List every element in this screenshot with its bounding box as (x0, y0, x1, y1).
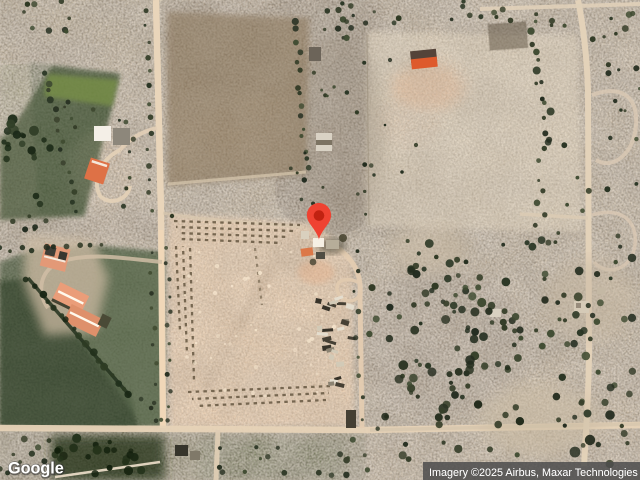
svg-text:Google: Google (8, 460, 64, 478)
svg-text:Imagery ©2025 Airbus, Maxar Te: Imagery ©2025 Airbus, Maxar Technologies (429, 467, 638, 479)
